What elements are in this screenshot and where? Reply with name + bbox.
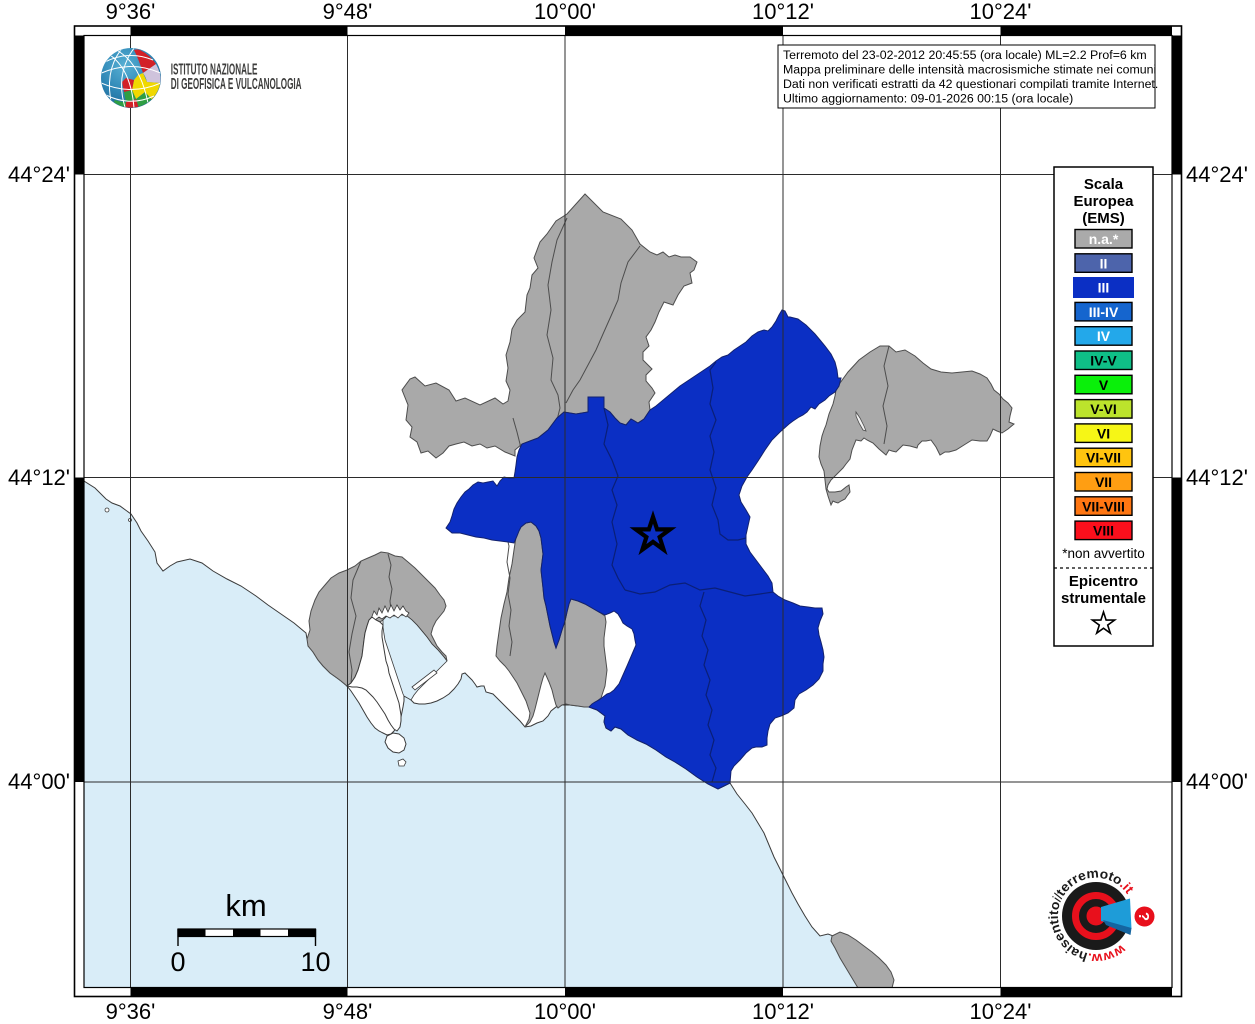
svg-text:10°12': 10°12' [752, 999, 814, 1024]
svg-text:44°00': 44°00' [8, 769, 70, 794]
svg-text:44°24': 44°24' [8, 162, 70, 187]
svg-text:VII: VII [1095, 474, 1112, 490]
svg-text:9°48': 9°48' [323, 0, 373, 24]
svg-text:10°24': 10°24' [970, 999, 1032, 1024]
svg-text:*non avvertito: *non avvertito [1062, 546, 1145, 561]
svg-text:9°48': 9°48' [323, 999, 373, 1024]
svg-text:Scala: Scala [1084, 176, 1124, 193]
svg-text:Ultimo aggiornamento: 09-01-20: Ultimo aggiornamento: 09-01-2026 00:15 (… [783, 92, 1073, 106]
svg-text:n.a.*: n.a.* [1089, 231, 1119, 247]
svg-text:(EMS): (EMS) [1082, 210, 1125, 227]
svg-text:10°12': 10°12' [752, 0, 814, 24]
svg-text:III: III [1098, 280, 1110, 296]
svg-text:44°12': 44°12' [8, 465, 70, 490]
svg-text:10°00': 10°00' [534, 999, 596, 1024]
svg-text:9°36': 9°36' [106, 0, 156, 24]
svg-text:9°36': 9°36' [106, 999, 156, 1024]
svg-text:IV: IV [1097, 328, 1111, 344]
svg-text:10°24': 10°24' [970, 0, 1032, 24]
svg-text:IV-V: IV-V [1090, 353, 1117, 369]
svg-text:VII-VIII: VII-VIII [1082, 498, 1125, 514]
svg-text:strumentale: strumentale [1061, 590, 1146, 607]
svg-text:III-IV: III-IV [1089, 304, 1119, 320]
svg-text:II: II [1100, 255, 1108, 271]
svg-text:Europea: Europea [1073, 193, 1134, 210]
svg-text:10: 10 [300, 947, 330, 977]
svg-text:?: ? [1135, 912, 1152, 921]
svg-text:Terremoto del 23-02-2012 20:45: Terremoto del 23-02-2012 20:45:55 (ora l… [783, 48, 1147, 62]
svg-text:Mappa preliminare delle intens: Mappa preliminare delle intensità macros… [783, 63, 1156, 77]
svg-text:44°12': 44°12' [1186, 465, 1248, 490]
svg-text:10°00': 10°00' [534, 0, 596, 24]
svg-text:VI-VII: VI-VII [1086, 450, 1121, 466]
svg-text:VIII: VIII [1093, 523, 1114, 539]
svg-text:VI: VI [1097, 425, 1110, 441]
svg-text:V-VI: V-VI [1090, 401, 1116, 417]
svg-text:Dati non verificati estratti d: Dati non verificati estratti da 42 quest… [783, 77, 1158, 91]
svg-text:44°24': 44°24' [1186, 162, 1248, 187]
svg-text:V: V [1099, 377, 1109, 393]
svg-text:km: km [225, 888, 266, 923]
svg-text:Epicentro: Epicentro [1069, 573, 1138, 590]
svg-text:0: 0 [170, 947, 185, 977]
svg-text:DI GEOFISICA E VULCANOLOGIA: DI GEOFISICA E VULCANOLOGIA [171, 75, 302, 92]
svg-text:44°00': 44°00' [1186, 769, 1248, 794]
